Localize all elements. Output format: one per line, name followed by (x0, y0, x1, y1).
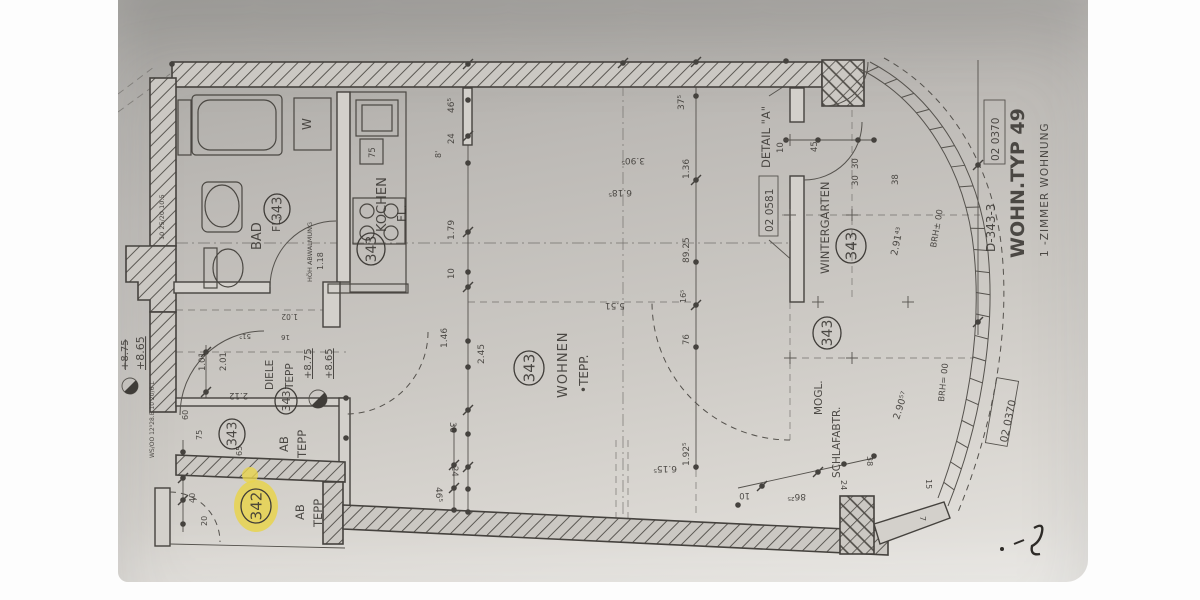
svg-text:WOHN.TYP 49: WOHN.TYP 49 (1007, 108, 1029, 258)
dim-65: 65 (235, 446, 244, 456)
svg-text:BRH= 00: BRH= 00 (937, 363, 951, 403)
svg-text:343: 343 (820, 320, 836, 347)
svg-text:DIELE: DIELE (264, 360, 276, 390)
svg-text:24: 24 (447, 133, 457, 144)
bathtub-icon (192, 95, 282, 155)
wall-recess-left (126, 246, 176, 312)
dim-76: 76 (682, 334, 692, 345)
title-drawing-code: D-343-3 (984, 204, 998, 252)
brh-lower: BRH= 00 (937, 363, 951, 403)
svg-text:FL.: FL. (270, 216, 283, 232)
title-sheet-number: 02 0370 (990, 118, 1002, 161)
note-wall-spec: WS/OO 12⁵28.E 10 20/6 L (149, 381, 156, 458)
level-875-edge: +8.75 (120, 339, 131, 370)
room-ab1: AB (277, 436, 291, 452)
svg-text:24: 24 (839, 480, 848, 490)
dim-515: 51⁵ (239, 332, 251, 340)
svg-text:10: 10 (447, 268, 457, 279)
wintergarten-wall-b (790, 176, 804, 302)
svg-text:1.36: 1.36 (682, 159, 692, 179)
schlafabtr-arc (652, 302, 790, 440)
dim-20: 20 (200, 516, 209, 526)
sheet-number-2: 02 0370 (998, 399, 1019, 444)
svg-text:5.51: 5.51 (605, 300, 625, 310)
room-bad: BAD (250, 222, 265, 250)
room-wintergarten: WINTERGARTEN (818, 182, 832, 274)
svg-text:45: 45 (810, 141, 820, 152)
detail-a-label: DETAIL "A" (759, 106, 773, 168)
dim-465-bot: 46⁵ (433, 487, 443, 502)
svg-text:02 0581: 02 0581 (764, 189, 776, 232)
svg-text:20: 20 (200, 516, 209, 526)
svg-text:SCHLAFABTR.: SCHLAFABTR. (831, 407, 843, 478)
svg-text:02 0370: 02 0370 (990, 118, 1002, 161)
dim-7-br: 7 (918, 516, 927, 521)
svg-text:WOHNEN: WOHNEN (556, 331, 571, 398)
svg-text:•TEPP.: •TEPP. (577, 355, 591, 393)
svg-text:10 25/20 10.5: 10 25/20 10.5 (158, 194, 166, 240)
level-marker-left-edge (122, 378, 141, 397)
dim-30-wg2: 30 (851, 175, 861, 186)
dim-201: 2.01 (219, 352, 229, 371)
svg-text:02 0370: 02 0370 (998, 399, 1019, 444)
svg-text:343: 343 (364, 236, 380, 263)
dim-102: 1.02 (281, 312, 298, 321)
svg-text:46⁵: 46⁵ (433, 487, 443, 502)
svg-text:6.15⁵: 6.15⁵ (653, 463, 677, 473)
dim-24-br: 24 (839, 480, 848, 490)
dim-8: 8' (434, 151, 443, 158)
room-bad-fl: FL. (270, 216, 283, 232)
curved-glass-facade (858, 58, 1004, 512)
bath-shelf (178, 100, 191, 155)
bad-south-wall (174, 282, 270, 293)
svg-text:10: 10 (739, 490, 750, 500)
dim-16: 16 (281, 333, 290, 341)
scanned-floor-plan-photo: 343343343343343342343343 D-343-302 0370W… (0, 0, 1200, 600)
svg-text:2.01: 2.01 (219, 352, 229, 371)
handwritten-mark (1000, 526, 1042, 555)
dim-291: 2.91⁴³ (889, 226, 906, 257)
svg-text:2.91⁴³: 2.91⁴³ (889, 226, 906, 257)
dim-1925: 1.92⁵ (682, 442, 692, 466)
column-top-right (822, 60, 864, 106)
svg-text:+8.65: +8.65 (134, 336, 147, 370)
title-subtitle: 1 -ZIMMER WOHNUNG (1039, 122, 1051, 257)
svg-text:343: 343 (842, 232, 860, 261)
dim-165: 16⁵ (679, 290, 688, 303)
svg-text:343: 343 (280, 391, 293, 412)
svg-text:2.90⁵⁷: 2.90⁵⁷ (891, 390, 910, 421)
svg-text:76: 76 (682, 334, 692, 345)
exterior-wall-bottom (343, 505, 888, 555)
dim-375: 37⁵ (677, 95, 687, 110)
svg-text:1.92⁵: 1.92⁵ (682, 442, 692, 466)
dim-465-top: 46⁵ (447, 98, 457, 113)
svg-text:DETAIL "A": DETAIL "A" (759, 106, 773, 168)
room-wohnen: WOHNEN (556, 331, 571, 398)
svg-text:WS/OO 12⁵28.E 10 20/6 L: WS/OO 12⁵28.E 10 20/6 L (149, 381, 156, 458)
dim-8625: 86²⁵ (787, 491, 806, 501)
room-ab2-tepp: TEPP (311, 499, 325, 528)
svg-text:W: W (300, 118, 314, 130)
dim-618: 6.18⁵ (608, 187, 632, 197)
dim-36-bot: 36 (447, 422, 457, 433)
svg-text:1.79: 1.79 (447, 220, 457, 240)
svg-text:75: 75 (368, 147, 378, 158)
svg-text:343: 343 (520, 354, 538, 383)
facade-outer-dashed (884, 58, 1004, 512)
svg-text:TEPP: TEPP (284, 363, 296, 390)
dim-551: 5.51 (605, 300, 625, 310)
svg-text:51⁵: 51⁵ (239, 332, 251, 340)
svg-text:1.18: 1.18 (316, 252, 325, 270)
svg-text:38: 38 (891, 174, 901, 185)
note-wall-spec-2: 10 25/20 10.5 (158, 194, 166, 240)
svg-text:1.46: 1.46 (440, 328, 450, 348)
room-ab1-tepp: TEPP (295, 430, 309, 459)
svg-text:1.01: 1.01 (198, 352, 208, 371)
svg-text:7: 7 (918, 516, 927, 521)
dim-179: 1.79 (447, 220, 457, 240)
dim-38-wg: 38 (891, 174, 901, 185)
dim-75b: 75 (195, 430, 204, 440)
dim-10-wg: 10 (776, 142, 786, 153)
svg-text:30: 30 (851, 175, 861, 186)
svg-text:D-343-3: D-343-3 (984, 204, 998, 252)
room-ab2: AB (293, 504, 307, 520)
svg-text:1 -ZIMMER WOHNUNG: 1 -ZIMMER WOHNUNG (1039, 122, 1051, 257)
dim-10-b: 10 (739, 490, 750, 500)
left-bottom-pier (155, 488, 170, 546)
dim-8925: 89.25 (682, 237, 692, 263)
svg-text:8': 8' (434, 151, 443, 158)
svg-text:2.45: 2.45 (477, 344, 487, 364)
room-moegl: MOGL. (813, 380, 825, 415)
room-number-343: 343 (836, 229, 866, 263)
room-diele-tepp: TEPP (284, 363, 296, 390)
svg-text:40: 40 (188, 493, 197, 503)
svg-text:10: 10 (776, 142, 786, 153)
svg-text:46⁵: 46⁵ (447, 98, 457, 113)
dim-75: 75 (368, 147, 378, 158)
room-number-343: 343 (514, 351, 544, 385)
ab342-east-wall (323, 482, 343, 544)
svg-text:15: 15 (924, 479, 933, 489)
svg-text:36: 36 (447, 422, 457, 433)
dim-24-bot: 24 (449, 466, 459, 477)
svg-text:16⁵: 16⁵ (679, 290, 688, 303)
note-abwalmung: HÖH ABWALMUNG (305, 222, 314, 282)
svg-text:60: 60 (181, 410, 190, 420)
room-wohnen-tepp: •TEPP. (577, 355, 591, 393)
dim-615: 6.15⁵ (653, 463, 677, 473)
ab342-bottom-edge (170, 544, 345, 548)
dim-60: 60 (181, 410, 190, 420)
svg-text:+8.65: +8.65 (324, 348, 335, 379)
dim-101: 1.01 (198, 352, 208, 371)
svg-text:343: 343 (226, 422, 241, 447)
washbasin-counter (202, 182, 242, 232)
svg-text:MOGL.: MOGL. (813, 380, 825, 415)
svg-text:37⁵: 37⁵ (677, 95, 687, 110)
svg-text:TEPP: TEPP (295, 430, 309, 459)
room-number-343: 343 (357, 233, 385, 265)
svg-text:FL.: FL. (395, 205, 409, 222)
wintergarten-wall-a (790, 88, 804, 122)
svg-text:1.02: 1.02 (281, 312, 298, 321)
dim-245: 2.45 (477, 344, 487, 364)
diele-wohnen-door-arc (346, 332, 428, 414)
svg-text:65: 65 (235, 446, 244, 456)
dim-136: 1.36 (682, 159, 692, 179)
svg-text:75: 75 (195, 430, 204, 440)
svg-text:TEPP: TEPP (311, 499, 325, 528)
svg-text:BAD: BAD (250, 222, 265, 250)
room-diele: DIELE (264, 360, 276, 390)
svg-text:6.18⁵: 6.18⁵ (608, 187, 632, 197)
bathtub-inner (198, 100, 276, 150)
ab-divider-wall (176, 455, 345, 482)
room-number-343: 343 (813, 317, 841, 349)
dim-38-br: 38 (865, 456, 874, 466)
dim-390: 3.90⁵ (621, 155, 645, 165)
exterior-wall-top (172, 62, 822, 87)
svg-text:24: 24 (449, 466, 459, 477)
svg-text:AB: AB (277, 436, 291, 452)
svg-text:HÖH ABWALMUNG: HÖH ABWALMUNG (305, 222, 314, 282)
room-kochen-fl: FL. (395, 205, 409, 222)
svg-text:38: 38 (865, 456, 874, 466)
svg-text:AB: AB (293, 504, 307, 520)
svg-text:89.25: 89.25 (682, 237, 692, 263)
note-abwalmung-dim: 1.18 (316, 252, 325, 270)
dim-30-wg1: 30 (851, 158, 861, 169)
facade-bottom-close (874, 502, 950, 544)
plan-paper: 343343343343343342343343 D-343-302 0370W… (118, 0, 1088, 582)
dim-45-wg: 45 (810, 141, 820, 152)
level-865-edge: +8.65 (134, 336, 147, 370)
level-865: +8.65 (324, 348, 335, 379)
svg-text:16: 16 (281, 333, 290, 341)
svg-text:3.90⁵: 3.90⁵ (621, 155, 645, 165)
dim-15-br: 15 (924, 479, 933, 489)
svg-text:WINTERGARTEN: WINTERGARTEN (818, 182, 832, 274)
washbasin-icon (205, 185, 239, 227)
detail-ref: 02 0581 (764, 189, 776, 232)
dim-290: 2.90⁵⁷ (891, 390, 910, 421)
washer-w: W (300, 118, 314, 130)
svg-text:342: 342 (247, 492, 265, 521)
svg-text:30: 30 (851, 158, 861, 169)
room-kochen: KOCHEN (375, 177, 390, 232)
dim-146: 1.46 (440, 328, 450, 348)
svg-text:+8.75: +8.75 (303, 348, 314, 379)
svg-text:2.12: 2.12 (229, 390, 248, 400)
svg-text:86²⁵: 86²⁵ (787, 491, 806, 501)
dim-212: 2.12 (229, 390, 248, 400)
column-bottom-right (840, 496, 874, 554)
svg-text:KOCHEN: KOCHEN (375, 177, 390, 232)
diele-wohnen-stub (323, 282, 340, 327)
room-schlafabtr: SCHLAFABTR. (831, 407, 843, 478)
bad-kochen-wall (337, 92, 350, 282)
dim-10-k: 10 (447, 268, 457, 279)
level-875: +8.75 (303, 348, 314, 379)
dim-24-top: 24 (447, 133, 457, 144)
floor-plan-drawing: 343343343343343342343343 D-343-302 0370W… (118, 0, 1088, 582)
svg-text:+8.75: +8.75 (120, 339, 131, 370)
room-number-343: 343 (219, 419, 245, 449)
dim-40: 40 (188, 493, 197, 503)
title-wohn-typ: WOHN.TYP 49 (1007, 108, 1029, 258)
